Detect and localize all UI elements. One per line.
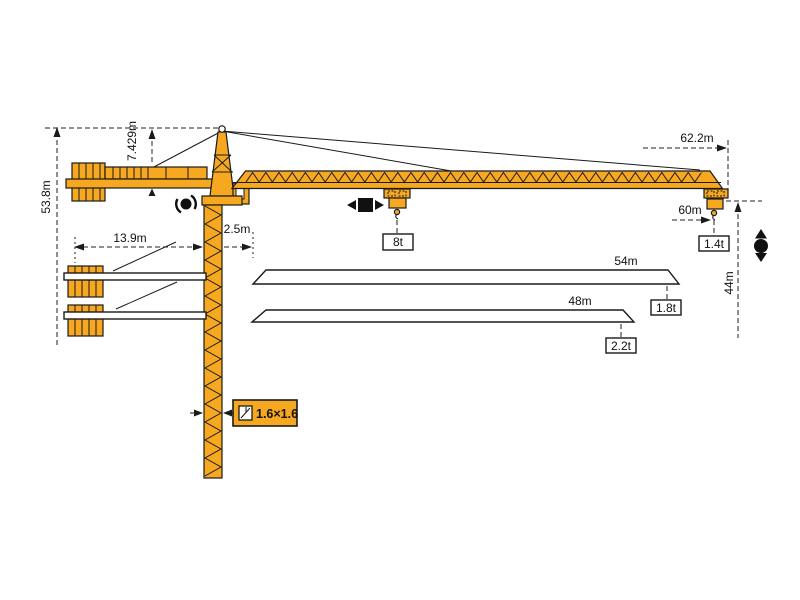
crane-diagram: 53.8m 7.429m 13.9m 2.5m 62.2m 60m 44m <box>0 0 800 600</box>
dim-counterjib-radius: 13.9m <box>74 231 203 263</box>
main-jib <box>232 171 723 189</box>
label-tip-load-60: 1.4t <box>704 237 725 251</box>
label-tip-load-54: 1.8t <box>656 301 677 315</box>
tie-bars <box>152 131 700 172</box>
leader-line-1 <box>113 242 176 271</box>
jib-variant-48: 48m 2.2t <box>252 294 636 353</box>
mid-trolley <box>384 189 410 219</box>
jib-variant-54: 54m 1.8t <box>253 254 681 315</box>
trolley-travel-icon <box>347 198 384 212</box>
tip-hook <box>711 210 716 215</box>
label-total-height: 53.8m <box>39 180 53 213</box>
apex-pin <box>219 126 225 132</box>
label-main-jib-length: 60m <box>678 203 701 217</box>
label-max-radius: 62.2m <box>680 131 713 145</box>
dim-main-jib-length: 60m <box>672 203 711 224</box>
crane-diagram-svg: 53.8m 7.429m 13.9m 2.5m 62.2m 60m 44m <box>0 0 800 600</box>
counterjib-bar-1 <box>64 273 206 280</box>
turntable <box>202 196 242 205</box>
label-jib-48: 48m <box>568 294 591 308</box>
label-head-height: 7.429m <box>125 121 139 161</box>
hoist-icon <box>754 229 768 262</box>
hook <box>394 209 399 214</box>
tip-load-60-tag: 1.4t <box>699 236 729 251</box>
dim-pivot-offset: 2.5m <box>224 222 253 258</box>
dim-hook-height: 44m <box>722 201 762 338</box>
max-capacity-tag: 8t <box>383 234 413 250</box>
tower-head <box>210 126 234 196</box>
counter-jib <box>66 163 222 201</box>
counterjib-girder <box>66 179 222 188</box>
label-hook-height: 44m <box>722 271 736 294</box>
mast-cross-section-icon <box>239 406 252 420</box>
label-jib-54: 54m <box>614 254 637 268</box>
counterweight-variant-1 <box>64 242 206 297</box>
mast <box>204 205 222 478</box>
counterjib-bar-2 <box>64 312 206 319</box>
label-counterjib-radius: 13.9m <box>113 231 146 245</box>
label-tip-load-48: 2.2t <box>611 339 632 353</box>
slewing-icon <box>176 196 196 213</box>
tip-trolley <box>704 189 728 220</box>
label-pivot-offset: 2.5m <box>224 222 251 236</box>
label-max-capacity: 8t <box>393 235 404 249</box>
leader-line-2 <box>116 282 177 309</box>
label-mast-section: 1.6×1.6 <box>256 407 298 421</box>
